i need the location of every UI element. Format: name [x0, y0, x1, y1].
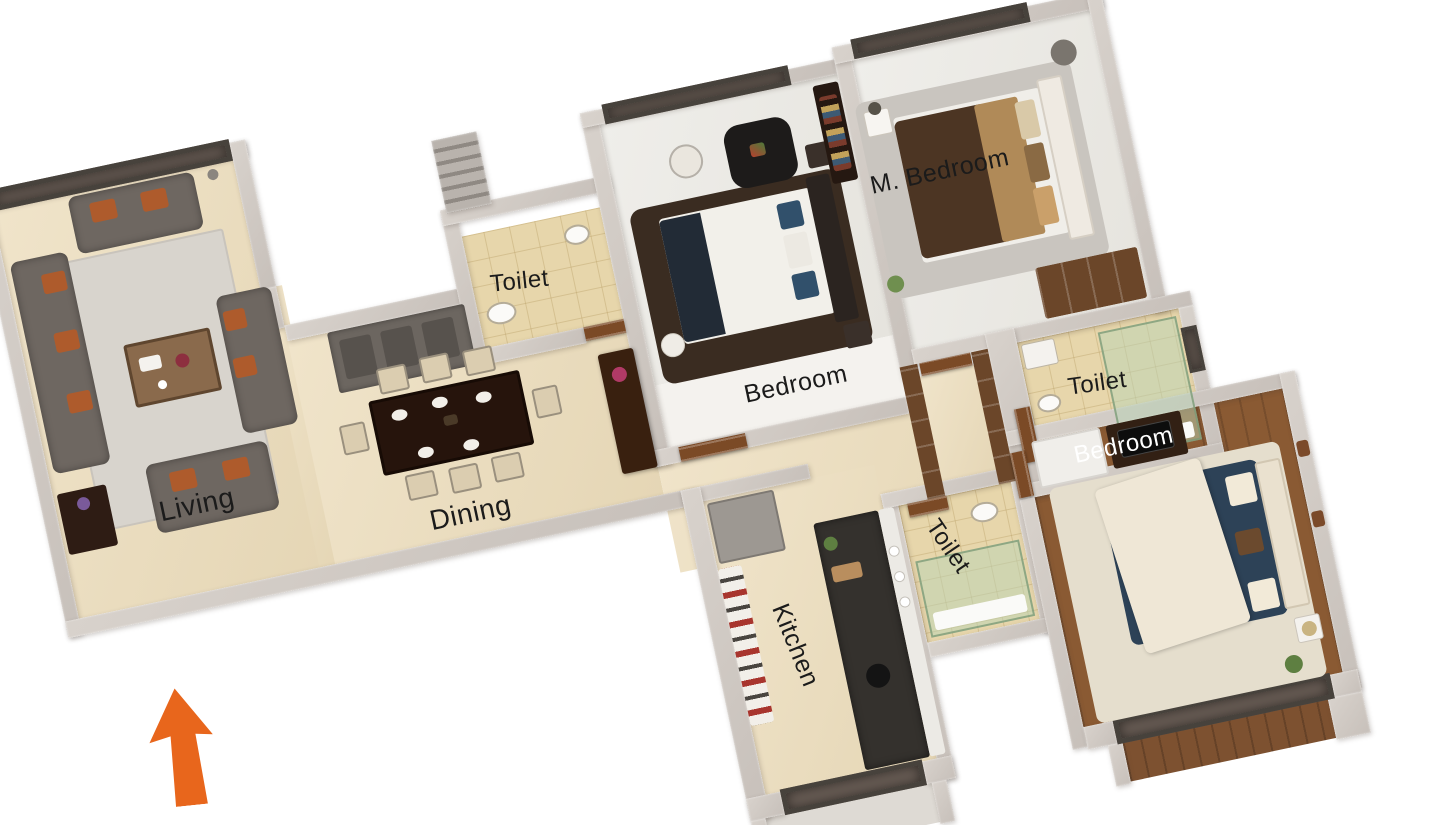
- wall: [922, 755, 956, 784]
- bed-pillow: [776, 200, 805, 230]
- bed-pillow: [1225, 472, 1259, 507]
- bed-pillow: [791, 270, 820, 300]
- floor-plan-canvas: Living Dining Toilet Bedroom M. Bedroom …: [0, 0, 1449, 825]
- ac-ledge: [431, 131, 491, 213]
- bed-pillow: [1247, 577, 1281, 612]
- wall: [1328, 691, 1371, 739]
- floor-plan: Living Dining Toilet Bedroom M. Bedroom …: [0, 0, 1449, 825]
